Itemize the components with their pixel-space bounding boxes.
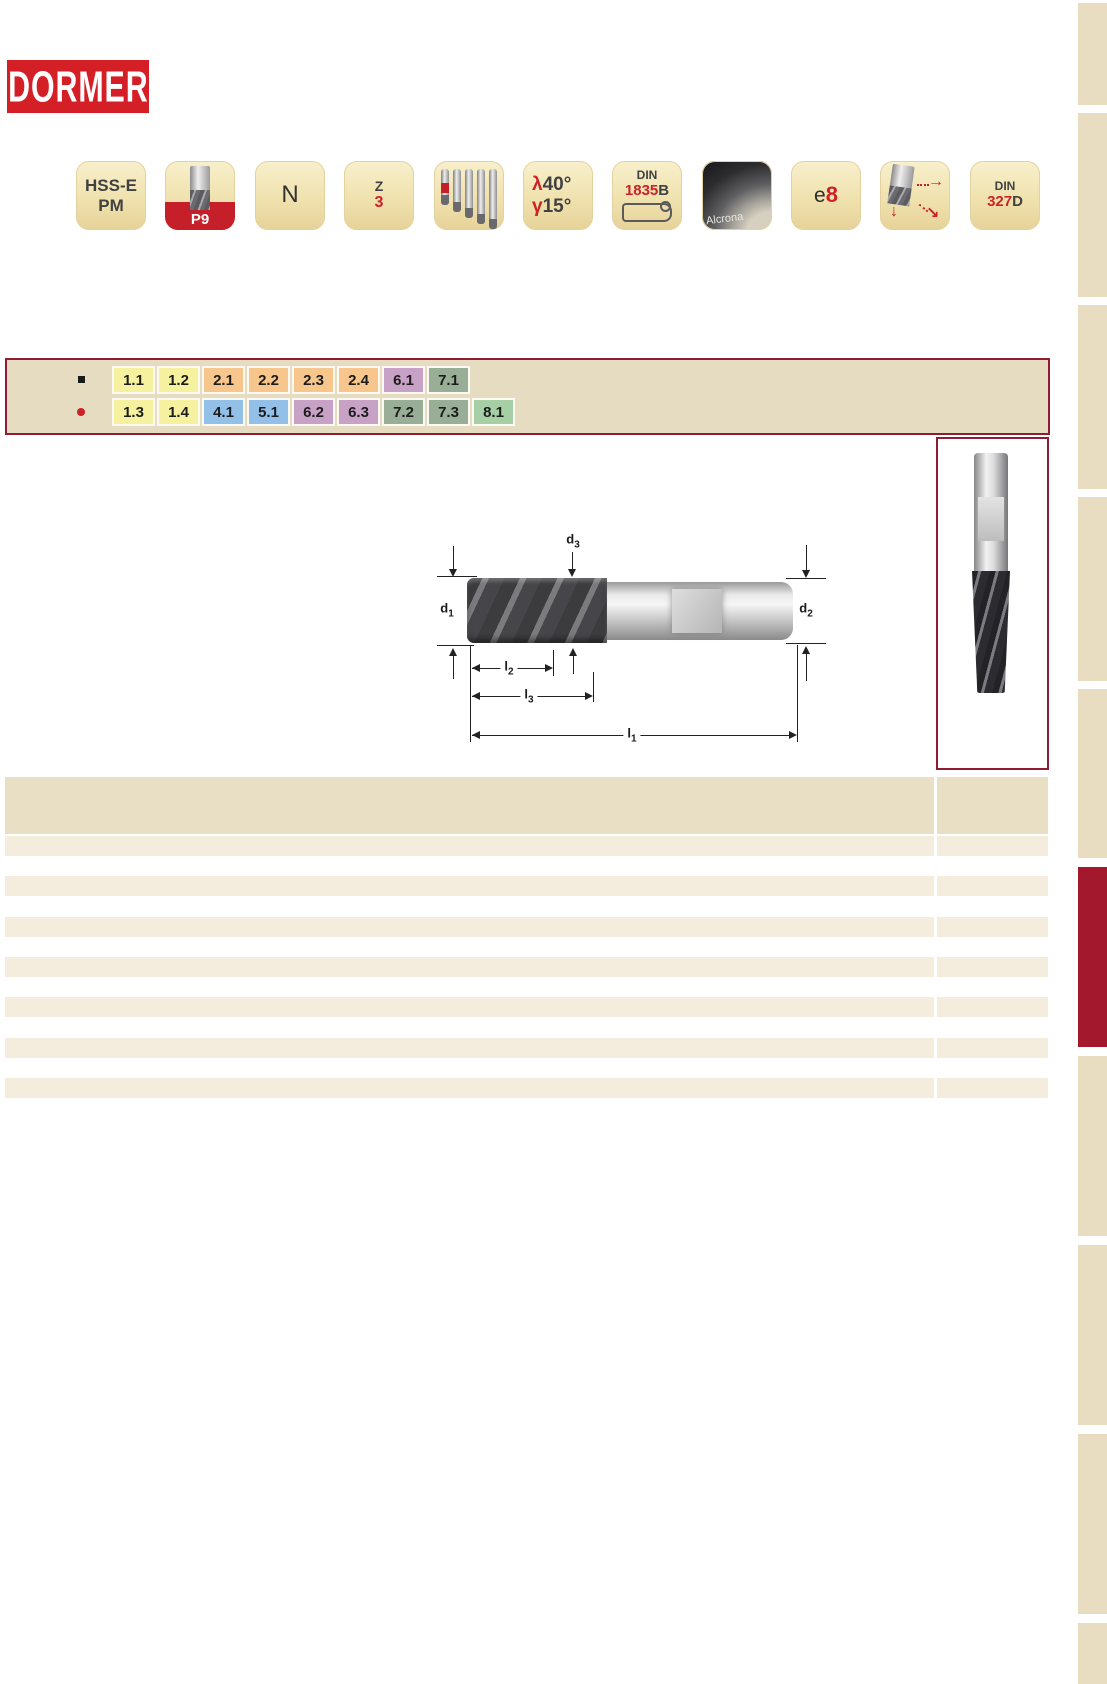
code-chip-7.2: 7.2 [382,398,425,426]
square-bullet-icon [78,376,85,383]
page-tab [1078,3,1107,105]
shank-std-num: 1835 [625,182,658,199]
tolerance-badge: e 8 [791,161,861,230]
spec-table-row [937,1038,1048,1058]
helix-value: 40° [543,174,572,195]
endmill-icon [887,164,914,207]
codes-row2-chips: 1.31.44.15.16.26.37.27.38.1 [112,398,517,426]
rake-symbol: γ [532,196,543,217]
product-photo [936,437,1049,770]
code-chip-2.4: 2.4 [337,366,380,394]
helix-symbol: λ [532,174,543,195]
shank-profile-icon [622,203,672,222]
code-chip-8.1: 8.1 [472,398,515,426]
shank-std: DIN [637,169,658,182]
dimension-label-d2: d2 [795,601,817,620]
page-tab [1078,689,1107,858]
code-chip-2.2: 2.2 [247,366,290,394]
page-tab [1078,113,1107,297]
dimension-label-l1: l1 [623,726,640,745]
iso-material-label: N [281,182,298,209]
arrow-right-icon: → [928,173,944,191]
code-chip-1.1: 1.1 [112,366,155,394]
spec-table-row [937,1078,1048,1098]
page-tab [1078,1056,1107,1236]
page-tab [1078,1245,1107,1425]
code-chip-7.1: 7.1 [427,366,470,394]
application-group-badge: P9 [165,161,235,230]
page-tab [1078,1434,1107,1614]
spec-table-row [5,1078,934,1098]
codes-row1-chips: 1.11.22.12.22.32.46.17.1 [112,366,472,394]
spec-table-row [5,957,934,977]
drawing-flutes [467,578,607,643]
page-tab [1078,1623,1107,1684]
spec-table-row [937,917,1048,937]
standard-suffix: D [1012,193,1023,210]
page-tab-active [1078,867,1107,1047]
material-line2: PM [98,196,124,215]
material-badge: HSS-E PM [76,161,146,230]
spec-table-row [5,836,934,856]
dimension-label-d3: d3 [562,532,584,551]
flute-count-badge: Z 3 [344,161,414,230]
geometry-badge: λ40° γ15° [523,161,593,230]
spec-table-row [937,997,1048,1017]
spec-table-row [5,917,934,937]
dot-bullet-icon [77,408,85,416]
range-mark [441,183,449,193]
dimension-label-l2: l2 [500,659,517,678]
drawing-weldon-flat [672,589,722,633]
code-chip-5.1: 5.1 [247,398,290,426]
spec-table-row [937,876,1048,896]
code-chip-2.1: 2.1 [202,366,245,394]
code-chip-4.1: 4.1 [202,398,245,426]
tolerance-value: 8 [826,183,838,208]
code-chip-6.3: 6.3 [337,398,380,426]
catalog-page: DORMER HSS-E PM P9 N Z 3 λ40° γ15° [0,0,1107,1684]
code-chip-6.1: 6.1 [382,366,425,394]
iso-material-badge: N [255,161,325,230]
coating-badge: Alcrona [702,161,772,230]
spec-table-row [5,1038,934,1058]
shank-std-suffix: B [658,182,669,199]
code-chip-1.2: 1.2 [157,366,200,394]
tolerance-prefix: e [814,184,826,208]
standard-num: 327 [987,193,1012,210]
arrow-down-icon: ↓ [890,203,898,221]
range-tool-icon [465,169,473,218]
spec-table-row [5,997,934,1017]
standard-badge: DIN 327D [970,161,1040,230]
photo-weldon-flat [978,497,1004,541]
code-chip-1.4: 1.4 [157,398,200,426]
spec-table-header [5,777,934,834]
spec-table-row [937,836,1048,856]
ramping-badge: → ↓ ↘ [880,161,950,230]
code-chip-1.3: 1.3 [112,398,155,426]
rake-value: 15° [543,196,572,217]
shank-standard-badge: DIN 1835B [612,161,682,230]
codes-legend: 1.11.22.12.22.32.46.17.1 1.31.44.15.16.2… [5,358,1050,435]
code-chip-2.3: 2.3 [292,366,335,394]
page-tab [1078,497,1107,681]
code-chip-6.2: 6.2 [292,398,335,426]
spec-table-row [937,957,1048,977]
endmill-icon [190,166,210,210]
flute-value: 3 [375,194,384,212]
material-line1: HSS-E [85,176,137,195]
spec-table-header-side [937,777,1048,834]
product-range-badge [434,161,504,230]
code-chip-7.3: 7.3 [427,398,470,426]
dimension-label-d1: d1 [436,601,458,620]
application-group-label: P9 [165,211,235,228]
page-tab [1078,305,1107,489]
dimension-label-l3: l3 [520,687,537,706]
dormer-logo: DORMER [7,60,149,113]
spec-table-row [5,876,934,896]
photo-flutes [972,571,1010,693]
arrow-diagonal-icon: ↘ [926,203,939,223]
coating-label: Alcrona [705,211,743,227]
range-tool-icon [489,169,497,229]
range-tool-icon [453,169,461,212]
dormer-logo-text: DORMER [8,61,148,111]
range-tool-icon [477,169,485,224]
standard-std: DIN [995,180,1016,193]
flute-symbol: Z [375,179,384,195]
